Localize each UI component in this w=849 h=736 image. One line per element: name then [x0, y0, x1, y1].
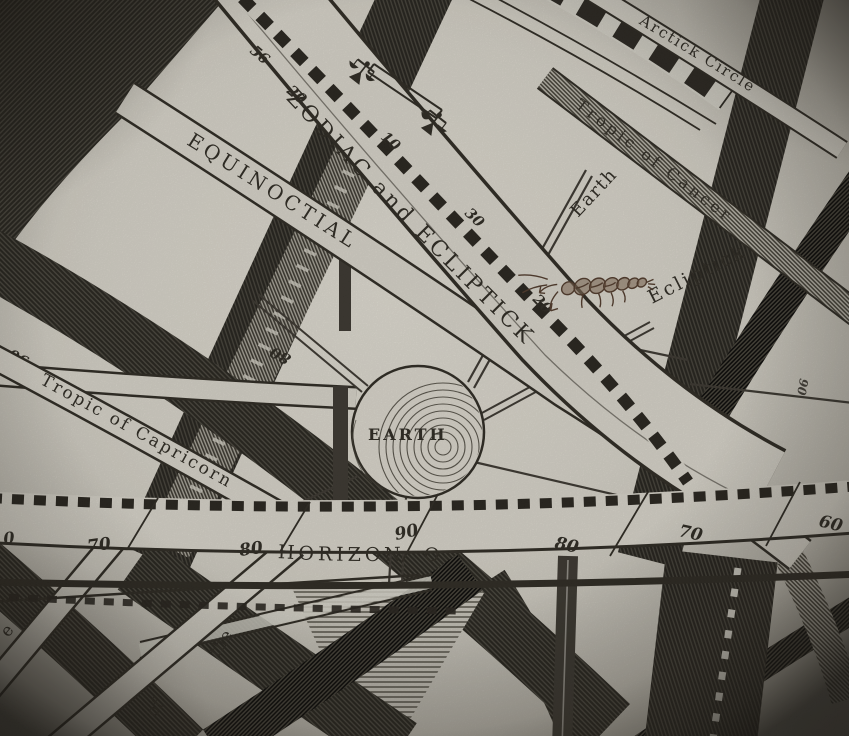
paper-grain: [0, 0, 849, 736]
armillary-sphere-engraving: e of the 90 80 EQUINOCTIAL 56 20 10 30 2…: [0, 0, 849, 736]
